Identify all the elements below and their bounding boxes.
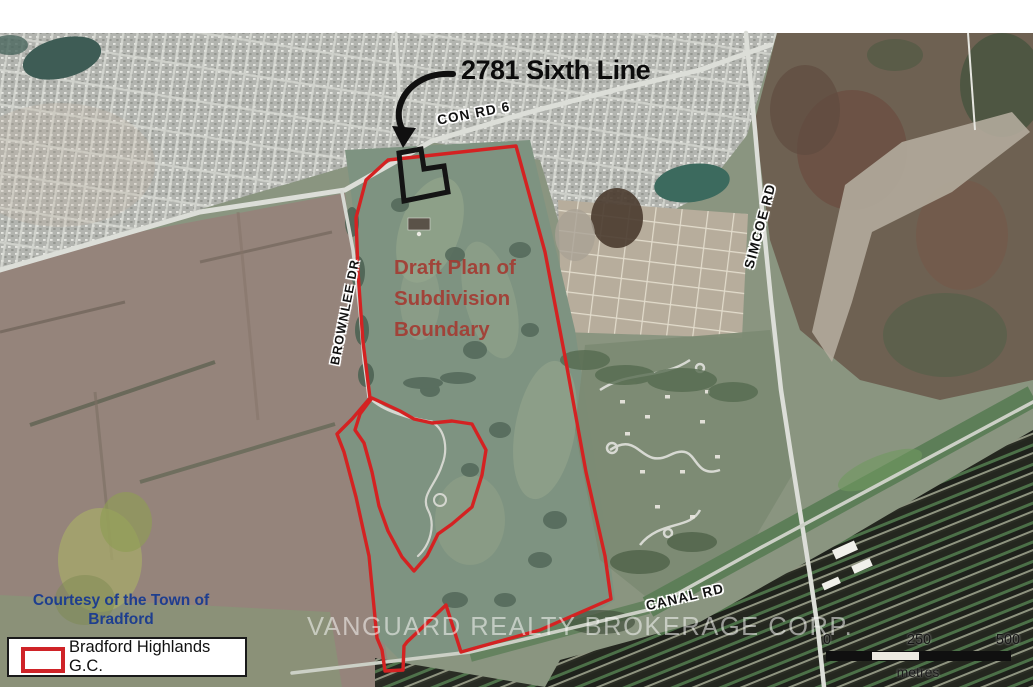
- scale-tick-0: 0: [823, 632, 831, 648]
- scale-bar-rule: [826, 651, 1011, 661]
- brokerage-watermark: VANGUARD REALTY BROKERAGE CORP.: [307, 613, 853, 642]
- parcel-address-callout: 2781 Sixth Line: [461, 55, 650, 86]
- satellite-basemap: [0, 0, 1033, 687]
- legend: Bradford Highlands G.C.: [7, 637, 247, 677]
- scale-bar-white-segment: [872, 652, 919, 660]
- legend-red-outline-swatch: [21, 647, 65, 673]
- subdivision-boundary-note: Draft Plan of Subdivision Boundary: [394, 252, 516, 345]
- legend-item-label: Bradford Highlands G.C.: [69, 638, 245, 676]
- scale-tick-500: 500: [996, 632, 1020, 648]
- scale-unit-label: metres: [897, 664, 940, 680]
- map-credit: Courtesy of the Town of Bradford: [15, 591, 227, 629]
- map-figure: 2781 Sixth Line CON RD 6 BROWNLEE DR SIM…: [0, 0, 1033, 687]
- clubhouse-building: [408, 218, 430, 230]
- scale-tick-250: 250: [907, 632, 931, 648]
